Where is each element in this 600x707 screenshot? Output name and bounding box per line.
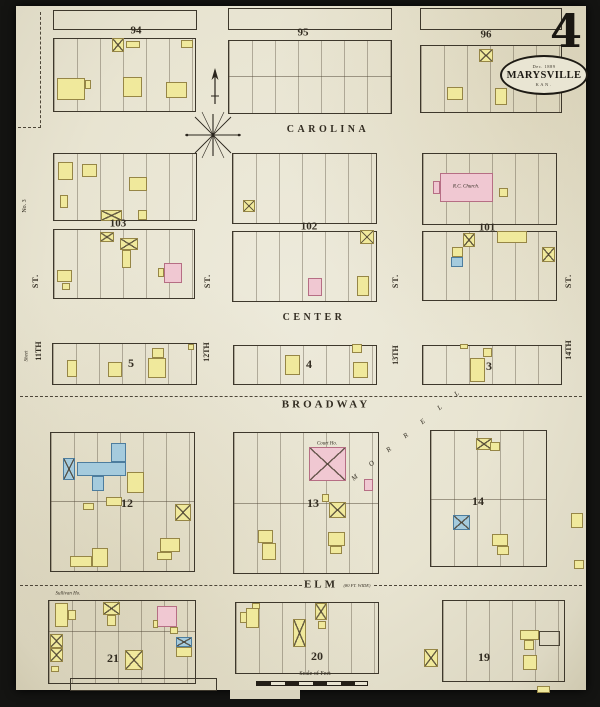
map-title: MARYSVILLE: [507, 70, 582, 81]
north-arrow-icon: [205, 66, 225, 108]
map-date: Dec. 1889: [533, 64, 556, 69]
photo-frame: 949596CAROLINA103102101R.C. Church.ST.ST…: [0, 0, 600, 707]
compass-star-icon: [185, 107, 241, 163]
map-title-oval: Dec. 1889 MARYSVILLE KAN.: [500, 55, 588, 95]
scale-bar-rule: [256, 681, 368, 686]
paper-edge-tab: [230, 690, 300, 699]
sheet-number: 4: [550, 8, 582, 54]
map-state: KAN.: [536, 82, 553, 87]
scale-bar: [256, 681, 368, 687]
map-sheet: [16, 6, 586, 690]
